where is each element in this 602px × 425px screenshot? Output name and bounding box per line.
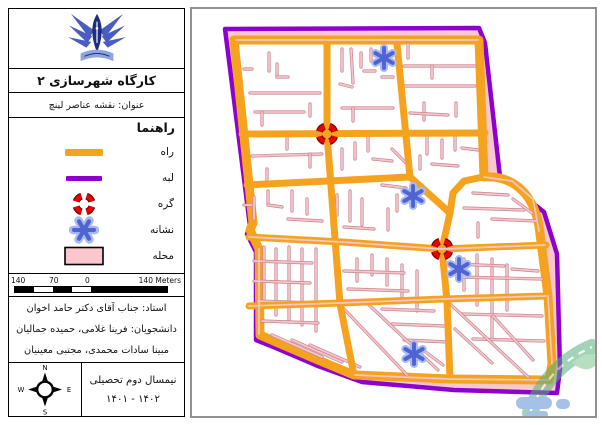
scale-bar-graphic	[14, 286, 168, 293]
page: { "panel": { "title": "کارگاه شهرسازی ۲"…	[0, 0, 602, 425]
legend-item-district: محله	[9, 243, 184, 269]
legend-title: راهنما	[137, 120, 175, 135]
compass-n-label: N	[42, 364, 47, 372]
semester-box: نیمسال دوم تحصیلی ۱۴۰۲ - ۱۴۰۱	[82, 363, 184, 416]
semester-line-1: نیمسال دوم تحصیلی	[90, 371, 177, 390]
students-line-2: مبینا سادات محمدی، مجتبی معینیان	[9, 340, 184, 361]
professor-line: استاد: جناب آقای دکتر حامد اخوان	[9, 298, 184, 319]
map-subtitle: عنوان: نقشه عناصر لینچ	[9, 93, 184, 118]
page-title: کارگاه شهرسازی ۲	[9, 69, 184, 93]
map-canvas	[190, 7, 597, 418]
scale-units: 140 Meters	[139, 276, 181, 285]
north-arrow: N S E W	[9, 363, 82, 416]
university-logo	[9, 9, 184, 69]
university-logo-graphic	[68, 12, 126, 66]
edge-swatch-icon	[59, 165, 109, 191]
legend-item-road: راه	[9, 139, 184, 165]
layout-panel: کارگاه شهرسازی ۲ عنوان: نقشه عناصر لینچ …	[8, 8, 185, 417]
legend-item-landmark: نشانه	[9, 217, 184, 243]
semester-line-2: ۱۴۰۲ - ۱۴۰۱	[106, 390, 160, 409]
legend-item-node: گره	[9, 191, 184, 217]
compass-s-label: S	[43, 409, 47, 417]
students-line-1: دانشجویان: فرینا غلامی، حمیده جمالیان	[9, 319, 184, 340]
legend: راهنما راه لبه	[9, 118, 184, 274]
landmark-swatch-icon	[59, 217, 109, 243]
compass-w-label: W	[18, 386, 25, 394]
main-road	[242, 133, 485, 134]
lynch-map	[192, 9, 595, 416]
district-swatch-icon	[59, 243, 109, 269]
scale-bar: 140 70 0 140 Meters	[9, 274, 184, 297]
node-swatch-icon	[59, 191, 109, 217]
road-swatch-icon	[59, 139, 109, 165]
compass-e-label: E	[67, 386, 71, 394]
legend-item-edge: لبه	[9, 165, 184, 191]
credits: استاد: جناب آقای دکتر حامد اخوان دانشجوی…	[9, 297, 184, 363]
